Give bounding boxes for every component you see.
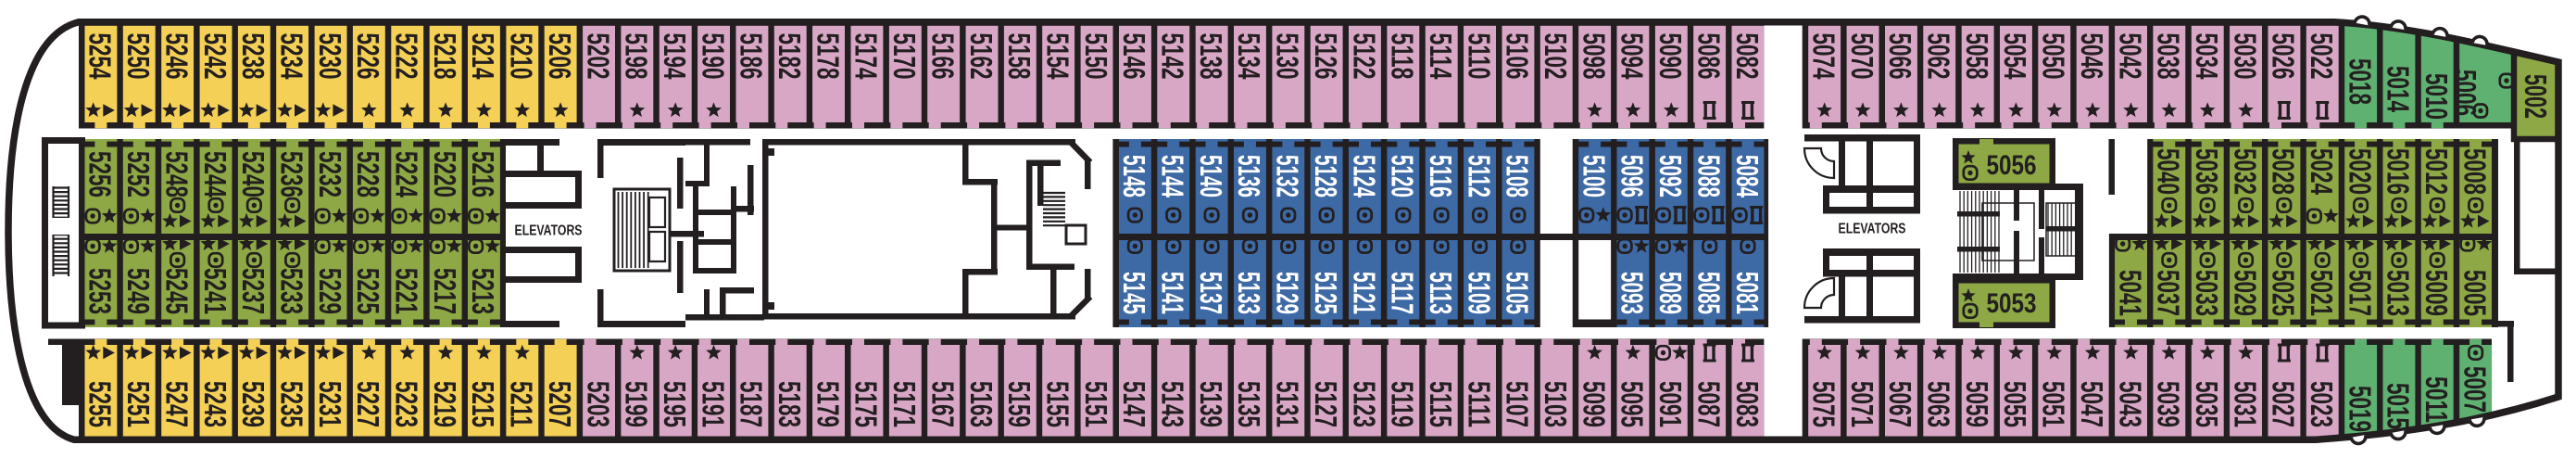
svg-text:ELEVATORS: ELEVATORS <box>515 223 583 239</box>
svg-text:5128: 5128 <box>1309 155 1343 197</box>
svg-text:5150: 5150 <box>1079 33 1113 80</box>
svg-text:5094: 5094 <box>1615 33 1650 80</box>
svg-text:5146: 5146 <box>1117 33 1151 80</box>
svg-text:5210: 5210 <box>505 33 539 80</box>
svg-text:5255: 5255 <box>83 381 118 427</box>
svg-text:5131: 5131 <box>1271 381 1305 427</box>
svg-text:5221: 5221 <box>390 268 424 314</box>
svg-text:5098: 5098 <box>1577 33 1611 80</box>
svg-text:5092: 5092 <box>1653 155 1688 197</box>
svg-text:5139: 5139 <box>1194 381 1228 427</box>
svg-text:5145: 5145 <box>1117 272 1151 314</box>
svg-text:5199: 5199 <box>620 381 654 427</box>
svg-text:5140: 5140 <box>1194 155 1228 197</box>
svg-text:5107: 5107 <box>1501 381 1535 427</box>
svg-text:5018: 5018 <box>2343 58 2377 105</box>
svg-text:5245: 5245 <box>159 268 194 314</box>
svg-text:5106: 5106 <box>1501 33 1535 80</box>
svg-text:5031: 5031 <box>2228 381 2262 427</box>
svg-text:5178: 5178 <box>810 33 845 80</box>
svg-text:5118: 5118 <box>1386 33 1420 80</box>
svg-text:5249: 5249 <box>121 268 156 314</box>
svg-text:5075: 5075 <box>1807 381 1841 427</box>
svg-text:5066: 5066 <box>1883 33 1917 80</box>
svg-text:5050: 5050 <box>2037 33 2071 80</box>
svg-text:5154: 5154 <box>1041 33 1075 80</box>
svg-text:5216: 5216 <box>466 151 500 197</box>
svg-text:5120: 5120 <box>1386 155 1420 197</box>
svg-text:5032: 5032 <box>2228 148 2262 195</box>
svg-text:5125: 5125 <box>1309 272 1343 314</box>
svg-text:5059: 5059 <box>1960 381 1994 427</box>
svg-text:5137: 5137 <box>1194 272 1228 314</box>
svg-text:5108: 5108 <box>1501 155 1535 197</box>
svg-text:5110: 5110 <box>1462 33 1496 80</box>
svg-text:5203: 5203 <box>581 381 615 427</box>
svg-text:5237: 5237 <box>236 268 270 314</box>
svg-text:5099: 5099 <box>1577 381 1611 427</box>
svg-text:5123: 5123 <box>1347 381 1381 427</box>
svg-text:5213: 5213 <box>466 268 500 314</box>
svg-text:5020: 5020 <box>2343 148 2377 195</box>
svg-text:5132: 5132 <box>1271 155 1305 197</box>
svg-text:5241: 5241 <box>198 268 232 314</box>
svg-text:5158: 5158 <box>1002 33 1037 80</box>
svg-text:5033: 5033 <box>2190 270 2224 316</box>
svg-text:5244: 5244 <box>198 151 232 197</box>
svg-text:5051: 5051 <box>2037 381 2071 427</box>
svg-text:5114: 5114 <box>1424 33 1458 80</box>
svg-text:5024: 5024 <box>2305 148 2339 195</box>
svg-text:5225: 5225 <box>351 268 385 314</box>
svg-text:5175: 5175 <box>849 381 884 427</box>
svg-text:5083: 5083 <box>1730 381 1765 427</box>
svg-text:5013: 5013 <box>2381 270 2416 316</box>
svg-text:5236: 5236 <box>275 151 309 197</box>
svg-text:5002: 5002 <box>2519 74 2553 119</box>
svg-text:5036: 5036 <box>2190 148 2224 195</box>
svg-text:5074: 5074 <box>1807 33 1841 80</box>
svg-text:5030: 5030 <box>2228 33 2262 80</box>
svg-text:5163: 5163 <box>964 381 999 427</box>
svg-text:5240: 5240 <box>236 151 270 197</box>
svg-text:5127: 5127 <box>1309 381 1343 427</box>
svg-text:5198: 5198 <box>620 33 654 80</box>
svg-text:5035: 5035 <box>2190 381 2224 427</box>
svg-text:5206: 5206 <box>543 33 577 80</box>
svg-text:5084: 5084 <box>1730 155 1765 197</box>
svg-text:5252: 5252 <box>121 151 156 197</box>
svg-text:5155: 5155 <box>1041 381 1075 427</box>
svg-text:5056: 5056 <box>1987 150 2037 181</box>
svg-text:5062: 5062 <box>1922 33 1956 80</box>
svg-text:5207: 5207 <box>543 381 577 427</box>
svg-text:5119: 5119 <box>1386 381 1420 427</box>
svg-text:5113: 5113 <box>1424 272 1458 314</box>
svg-text:5015: 5015 <box>2381 383 2416 429</box>
svg-text:5112: 5112 <box>1462 155 1496 197</box>
svg-text:5148: 5148 <box>1117 155 1151 197</box>
svg-text:5129: 5129 <box>1271 272 1305 314</box>
svg-text:5091: 5091 <box>1653 381 1688 427</box>
svg-text:5067: 5067 <box>1883 381 1917 427</box>
svg-text:5141: 5141 <box>1156 272 1190 314</box>
svg-text:5022: 5022 <box>2305 33 2339 80</box>
svg-text:5230: 5230 <box>313 33 347 80</box>
svg-text:5235: 5235 <box>275 381 309 427</box>
svg-text:5226: 5226 <box>351 33 385 80</box>
svg-text:5194: 5194 <box>658 33 692 80</box>
svg-text:5082: 5082 <box>1730 33 1765 80</box>
svg-text:5109: 5109 <box>1462 272 1496 314</box>
svg-text:5089: 5089 <box>1653 272 1688 314</box>
svg-text:5166: 5166 <box>925 33 960 80</box>
svg-text:5239: 5239 <box>236 381 270 427</box>
svg-text:5251: 5251 <box>121 381 156 427</box>
svg-text:5246: 5246 <box>159 33 194 80</box>
svg-text:5187: 5187 <box>735 381 769 427</box>
svg-text:5054: 5054 <box>1998 33 2032 80</box>
svg-text:5038: 5038 <box>2152 33 2186 80</box>
svg-text:5071: 5071 <box>1845 381 1879 427</box>
svg-text:5234: 5234 <box>275 33 309 80</box>
svg-text:5116: 5116 <box>1424 155 1458 197</box>
svg-text:5029: 5029 <box>2228 270 2262 316</box>
svg-text:5121: 5121 <box>1347 272 1381 314</box>
svg-text:5053: 5053 <box>1987 288 2037 319</box>
svg-text:5138: 5138 <box>1194 33 1228 80</box>
svg-text:5016: 5016 <box>2381 148 2416 195</box>
svg-text:5028: 5028 <box>2267 148 2301 195</box>
svg-text:5085: 5085 <box>1691 272 1726 314</box>
svg-text:5182: 5182 <box>773 33 807 80</box>
svg-text:5248: 5248 <box>159 151 194 197</box>
svg-text:5170: 5170 <box>887 33 922 80</box>
svg-text:5191: 5191 <box>696 381 730 427</box>
svg-text:5133: 5133 <box>1232 272 1266 314</box>
svg-text:5238: 5238 <box>236 33 270 80</box>
svg-text:5086: 5086 <box>1691 33 1726 80</box>
svg-text:5218: 5218 <box>428 33 462 80</box>
svg-text:5063: 5063 <box>1922 381 1956 427</box>
svg-text:5256: 5256 <box>83 151 118 197</box>
svg-text:5220: 5220 <box>428 151 462 197</box>
svg-text:5005: 5005 <box>2457 270 2492 316</box>
svg-text:5117: 5117 <box>1386 272 1420 314</box>
svg-text:5151: 5151 <box>1079 381 1113 427</box>
svg-text:5250: 5250 <box>121 33 156 80</box>
svg-text:5070: 5070 <box>1845 33 1879 80</box>
svg-text:5242: 5242 <box>198 33 232 80</box>
svg-text:5017: 5017 <box>2343 270 2377 316</box>
svg-text:5135: 5135 <box>1232 381 1266 427</box>
svg-text:5026: 5026 <box>2267 33 2301 80</box>
svg-text:5136: 5136 <box>1232 155 1266 197</box>
svg-text:5228: 5228 <box>351 151 385 197</box>
svg-text:5095: 5095 <box>1615 381 1650 427</box>
svg-text:5227: 5227 <box>351 381 385 427</box>
svg-text:5215: 5215 <box>466 381 500 427</box>
svg-text:5134: 5134 <box>1232 33 1266 80</box>
svg-text:5167: 5167 <box>925 381 960 427</box>
svg-text:5027: 5027 <box>2267 381 2301 427</box>
svg-text:5174: 5174 <box>849 33 884 80</box>
svg-text:5039: 5039 <box>2152 381 2186 427</box>
svg-text:5006: 5006 <box>2448 70 2482 116</box>
svg-text:5025: 5025 <box>2267 270 2301 316</box>
svg-text:5009: 5009 <box>2419 270 2454 316</box>
svg-text:5147: 5147 <box>1117 381 1151 427</box>
svg-text:5229: 5229 <box>313 268 347 314</box>
svg-text:5162: 5162 <box>964 33 999 80</box>
svg-text:5171: 5171 <box>887 381 922 427</box>
svg-text:5034: 5034 <box>2190 33 2224 80</box>
svg-text:5231: 5231 <box>313 381 347 427</box>
svg-text:5103: 5103 <box>1539 381 1573 427</box>
svg-text:5042: 5042 <box>2113 33 2147 80</box>
svg-text:5183: 5183 <box>773 381 807 427</box>
svg-text:5247: 5247 <box>159 381 194 427</box>
svg-text:5040: 5040 <box>2152 148 2186 195</box>
svg-text:5105: 5105 <box>1501 272 1535 314</box>
svg-text:5233: 5233 <box>275 268 309 314</box>
svg-text:5253: 5253 <box>83 268 118 314</box>
svg-text:5093: 5093 <box>1615 272 1650 314</box>
svg-text:5243: 5243 <box>198 381 232 427</box>
svg-text:5023: 5023 <box>2305 381 2339 427</box>
svg-text:5037: 5037 <box>2152 270 2186 316</box>
svg-text:5008: 5008 <box>2457 148 2492 195</box>
svg-text:5087: 5087 <box>1691 381 1726 427</box>
svg-text:5014: 5014 <box>2381 66 2416 112</box>
svg-text:5088: 5088 <box>1691 155 1726 197</box>
svg-text:5232: 5232 <box>313 151 347 197</box>
svg-text:5222: 5222 <box>390 33 424 80</box>
svg-text:5254: 5254 <box>83 33 118 80</box>
svg-text:5144: 5144 <box>1156 155 1190 197</box>
svg-text:5019: 5019 <box>2343 386 2377 432</box>
svg-text:5021: 5021 <box>2305 270 2339 316</box>
svg-text:5159: 5159 <box>1002 381 1037 427</box>
svg-text:5043: 5043 <box>2113 381 2147 427</box>
svg-text:5111: 5111 <box>1462 381 1496 427</box>
svg-text:5100: 5100 <box>1577 155 1611 197</box>
svg-text:5102: 5102 <box>1539 33 1573 80</box>
svg-text:5122: 5122 <box>1347 33 1381 80</box>
svg-text:5081: 5081 <box>1730 272 1765 314</box>
svg-text:5223: 5223 <box>390 381 424 427</box>
svg-text:5142: 5142 <box>1156 33 1190 80</box>
svg-text:5219: 5219 <box>428 381 462 427</box>
svg-text:5124: 5124 <box>1347 155 1381 197</box>
svg-text:5115: 5115 <box>1424 381 1458 427</box>
svg-text:5055: 5055 <box>1998 381 2032 427</box>
svg-text:5214: 5214 <box>466 33 500 80</box>
svg-text:5190: 5190 <box>696 33 730 80</box>
svg-text:5130: 5130 <box>1271 33 1305 80</box>
svg-text:5046: 5046 <box>2075 33 2109 80</box>
svg-text:5143: 5143 <box>1156 381 1190 427</box>
svg-text:5012: 5012 <box>2419 148 2454 195</box>
svg-text:5195: 5195 <box>658 381 692 427</box>
svg-text:5217: 5217 <box>428 268 462 314</box>
svg-text:5041: 5041 <box>2113 270 2147 316</box>
svg-text:5179: 5179 <box>810 381 845 427</box>
svg-text:5186: 5186 <box>735 33 769 80</box>
svg-text:5011: 5011 <box>2419 376 2454 423</box>
svg-text:ELEVATORS: ELEVATORS <box>1839 222 1906 237</box>
svg-text:5090: 5090 <box>1653 33 1688 80</box>
svg-text:5096: 5096 <box>1615 155 1650 197</box>
svg-text:5047: 5047 <box>2075 381 2109 427</box>
svg-text:5126: 5126 <box>1309 33 1343 80</box>
svg-text:5058: 5058 <box>1960 33 1994 80</box>
svg-text:5224: 5224 <box>390 151 424 197</box>
svg-text:5211: 5211 <box>505 381 539 427</box>
svg-text:5202: 5202 <box>581 33 615 80</box>
svg-text:5007: 5007 <box>2457 366 2492 413</box>
